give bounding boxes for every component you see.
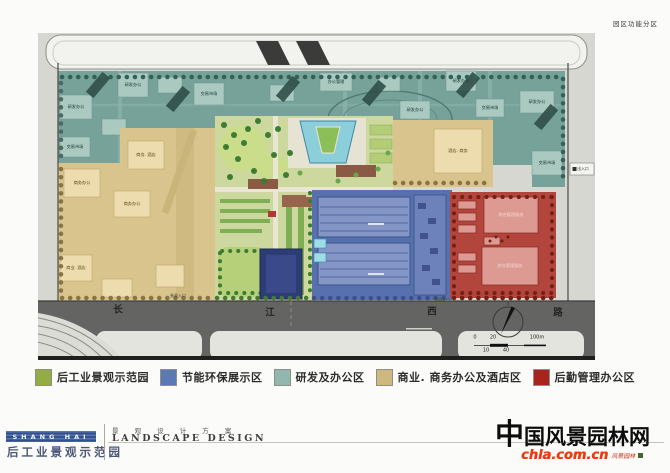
company-logo: SHANG HAI [6,431,96,442]
legend-label: 后勤管理办公区 [555,369,636,385]
zone-logistics [450,192,556,298]
project-title: 后工业景观示范园 [7,444,123,460]
legend-swatch [376,369,393,386]
legend-label: 研发及办公区 [296,369,365,385]
legend-item-1: 节能环保展示区 [160,369,263,386]
road-marker-box [570,163,594,175]
legend-label: 节能环保展示区 [182,369,263,385]
legend-item-4: 后勤管理办公区 [533,369,636,386]
plan-bottom-frame [38,356,595,360]
legend-item-2: 研发及办公区 [274,369,365,386]
corner-lawn [218,247,266,297]
presentation-board: 园区功能分区 [0,0,670,473]
legend-swatch [35,369,52,386]
site-plan-drawing [38,33,595,360]
watermark-seal: 风景园林 [611,451,635,460]
watermark-url: chla.com.cn [521,448,608,463]
legend-label: 后工业景观示范园 [57,369,149,385]
legend: 后工业景观示范园节能环保展示区研发及办公区商业. 商务办公及酒店区后勤管理办公区 [35,368,646,386]
legend-swatch [160,369,177,386]
legend-swatch [533,369,550,386]
footer-divider [104,424,105,460]
blue-sheds [318,195,446,295]
footer-subtitle-en: LANDSCAPE DESIGN [112,433,266,444]
legend-swatch [274,369,291,386]
legend-item-0: 后工业景观示范园 [35,369,149,386]
site-plan: 研发办公研发办公交易市场交易市场办公管理研发办公研发办公研发办公交易市场交易市场… [38,33,595,360]
legend-label: 商业. 商务办公及酒店区 [398,369,522,385]
page-title: 园区功能分区 [613,18,658,28]
legend-item-3: 商业. 商务办公及酒店区 [376,369,522,386]
watermark-seal-icon [638,453,643,458]
watermark: 中国风景园林网 chla.com.cn 风景园林 [495,419,667,463]
watermark-title: 中国风景园林网 [495,419,667,451]
